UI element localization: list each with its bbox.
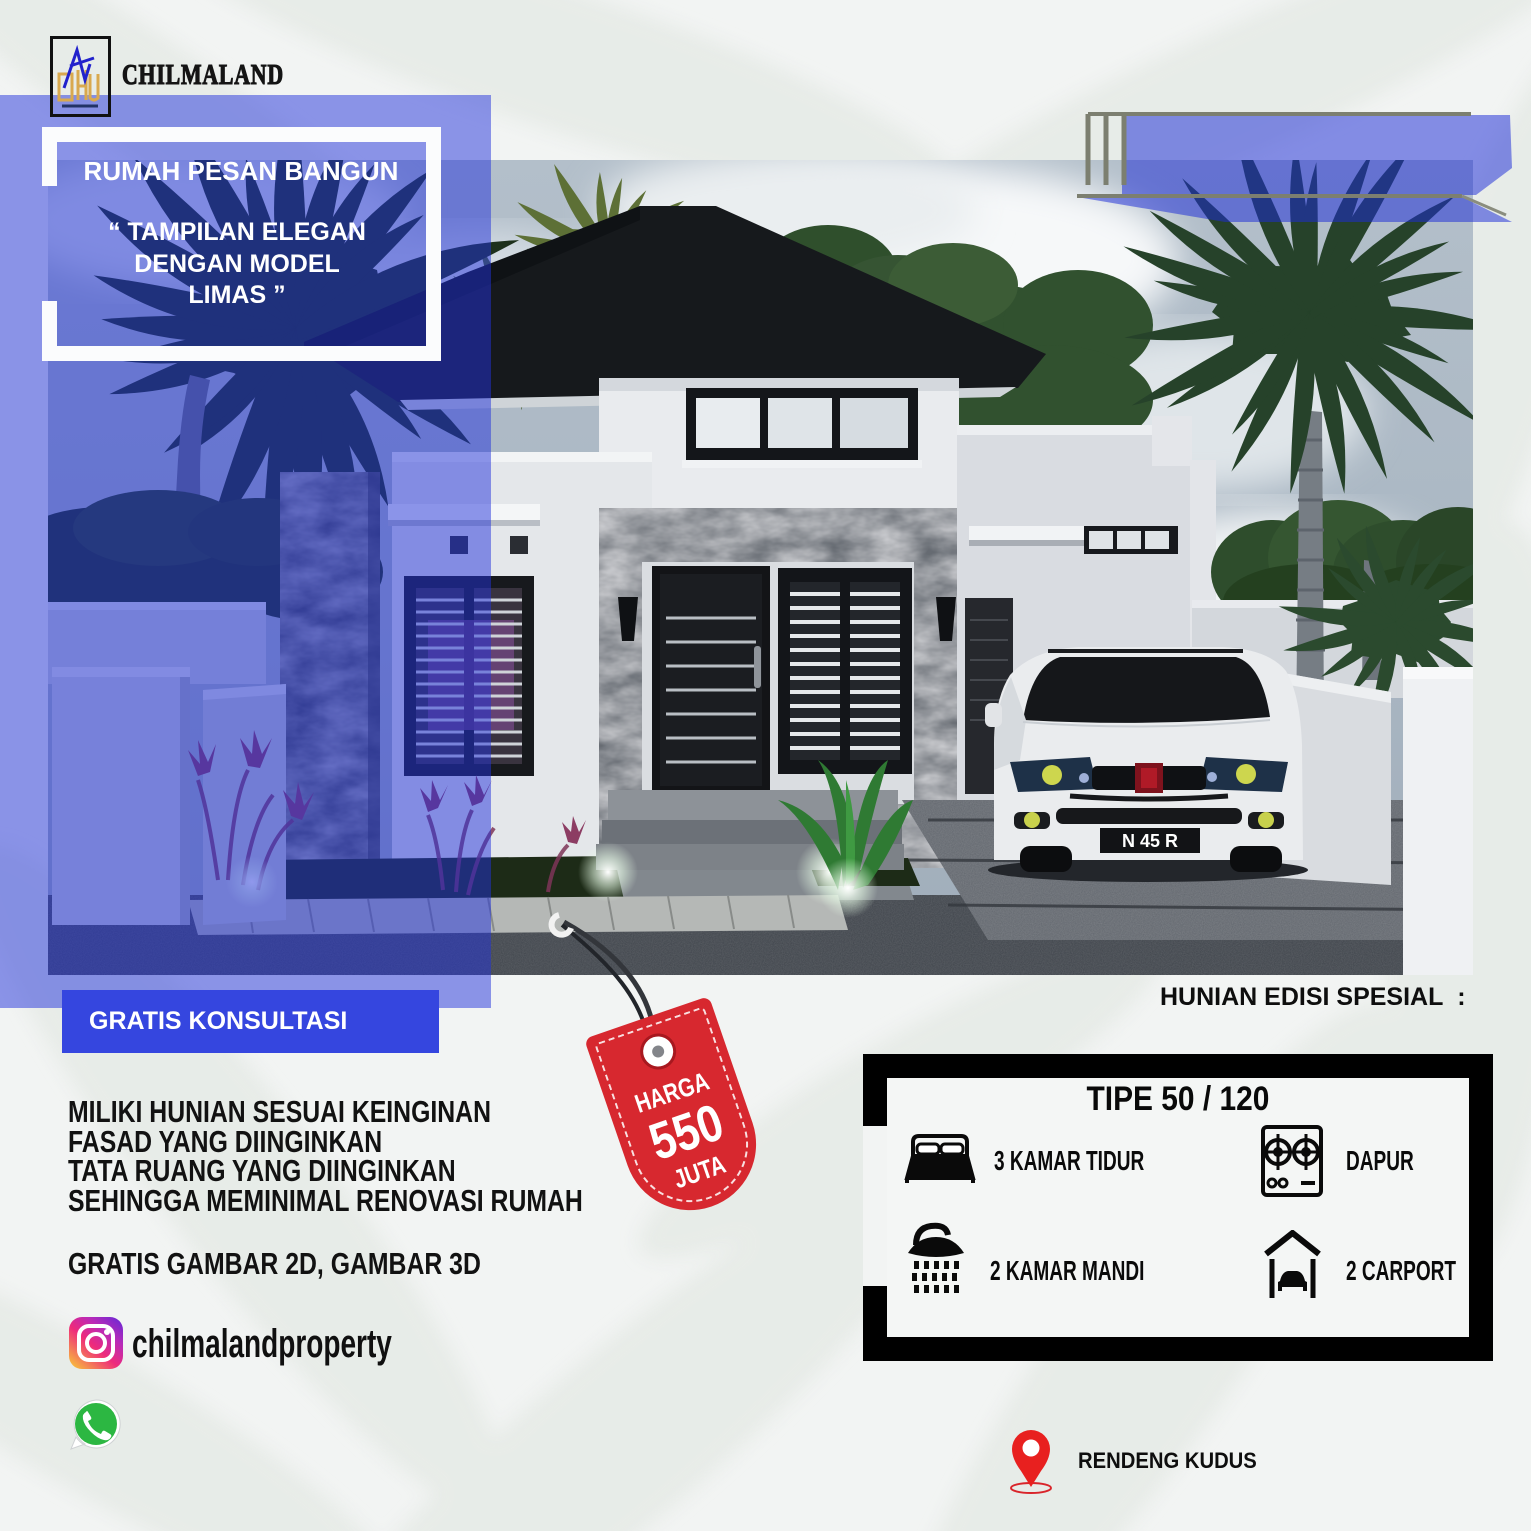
svg-text:N 45 R: N 45 R (1122, 831, 1178, 851)
